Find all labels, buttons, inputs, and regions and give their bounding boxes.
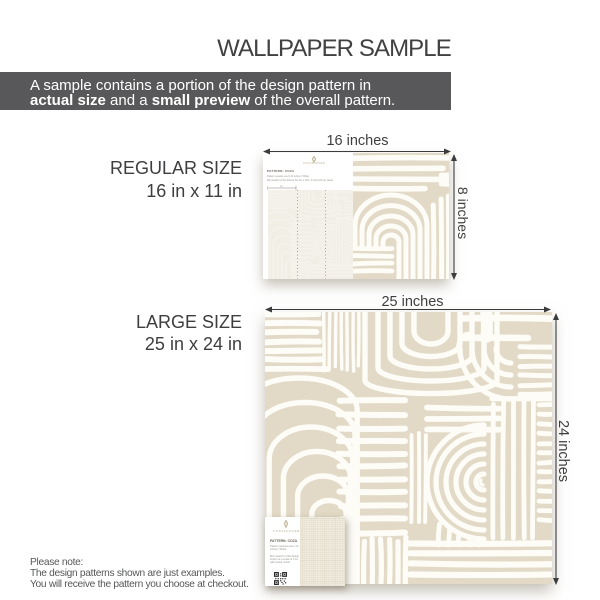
svg-text:16": 16" bbox=[280, 186, 283, 188]
